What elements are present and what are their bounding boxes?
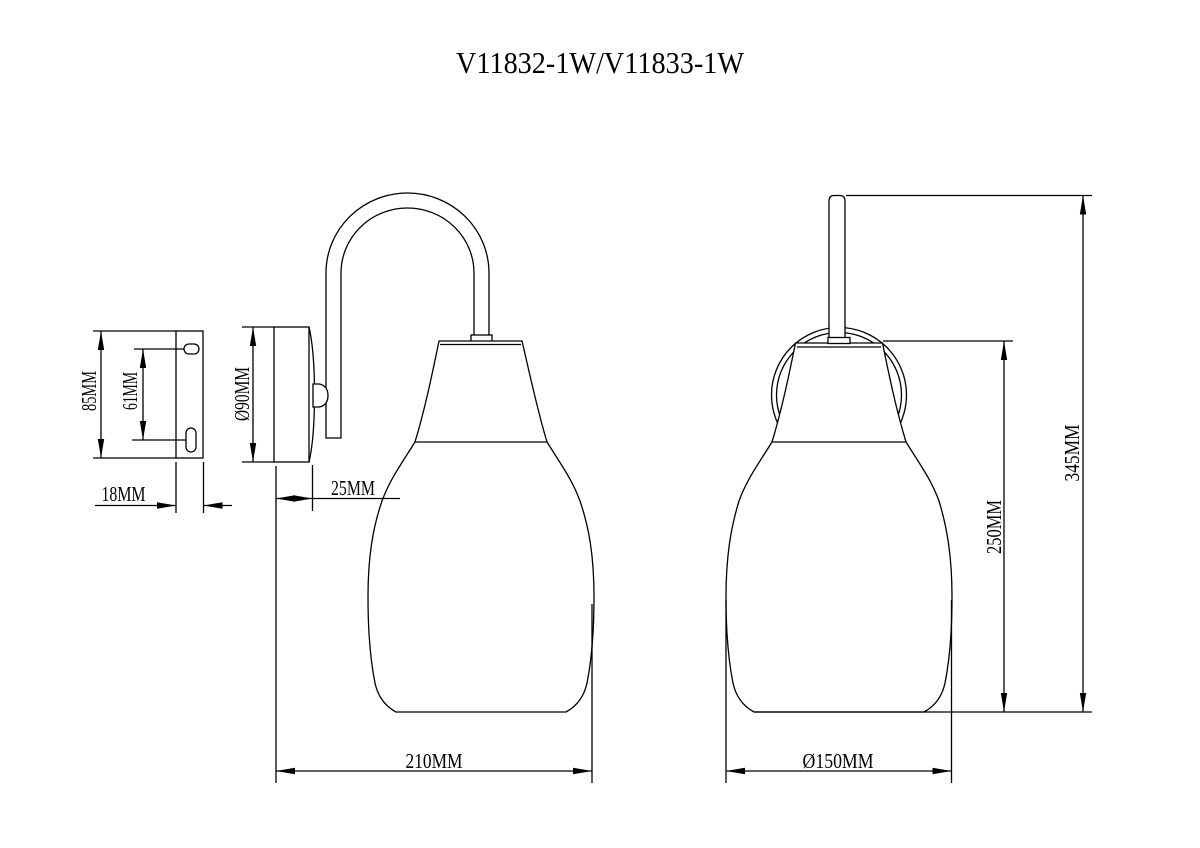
dim-projection-label: 210MM [406, 749, 463, 773]
arrow-up-icon [250, 327, 256, 346]
arm-mount-knob [313, 384, 328, 407]
dim-shade-height-label: 250MM [982, 500, 1006, 554]
arrow-up-icon [1080, 196, 1086, 215]
dim-shade-diameter-label: Ø150MM [803, 749, 874, 773]
arrow-up-icon [140, 349, 146, 368]
backplate-side [274, 327, 309, 462]
lamp-technical-drawing: V11832-1W/V11833-1W 85MM 61MM [0, 0, 1200, 848]
dimension-backplate-diameter: Ø90MM [230, 327, 274, 462]
arrow-right-icon [933, 768, 952, 774]
arrow-down-icon [98, 439, 104, 458]
glass-shade-side [368, 341, 594, 712]
dimension-bracket-depth: 18MM [95, 462, 232, 513]
bracket-top-slot [184, 344, 199, 354]
dim-bracket-depth-label: 18MM [102, 482, 146, 506]
lamp-side-view: Ø90MM 25MM 210MM [230, 193, 594, 783]
arrow-down-icon [140, 421, 146, 440]
arrow-left-icon [726, 768, 745, 774]
glass-shade-front [726, 343, 952, 712]
dim-overall-height-label: 345MM [1060, 424, 1084, 481]
arrow-up-icon [1001, 341, 1007, 360]
bracket-side-view: 85MM 61MM 18MM [77, 331, 232, 513]
arrow-left-icon [204, 502, 223, 508]
bracket-bottom-slot [186, 428, 196, 452]
lamp-front-view: 345MM 250MM Ø150MM [726, 196, 1092, 784]
arrow-down-icon [1080, 693, 1086, 712]
arrow-up-icon [98, 331, 104, 350]
dim-backplate-depth-label: 25MM [331, 476, 375, 500]
arrow-right-icon [294, 495, 313, 501]
dim-backplate-diameter-label: Ø90MM [230, 367, 254, 421]
arrow-down-icon [1001, 693, 1007, 712]
arrow-right-icon [573, 768, 592, 774]
arrow-left-icon [276, 495, 295, 501]
support-rod [829, 196, 845, 341]
dim-bracket-height-label: 85MM [77, 371, 101, 411]
shade-collar [828, 338, 850, 344]
arrow-down-icon [250, 443, 256, 462]
dim-slot-spacing-label: 61MM [118, 372, 142, 410]
technical-drawing-page: V11832-1W/V11833-1W 85MM 61MM [0, 0, 1200, 848]
model-title: V11832-1W/V11833-1W [456, 45, 745, 80]
arrow-right-icon [157, 502, 176, 508]
arrow-left-icon [276, 768, 295, 774]
